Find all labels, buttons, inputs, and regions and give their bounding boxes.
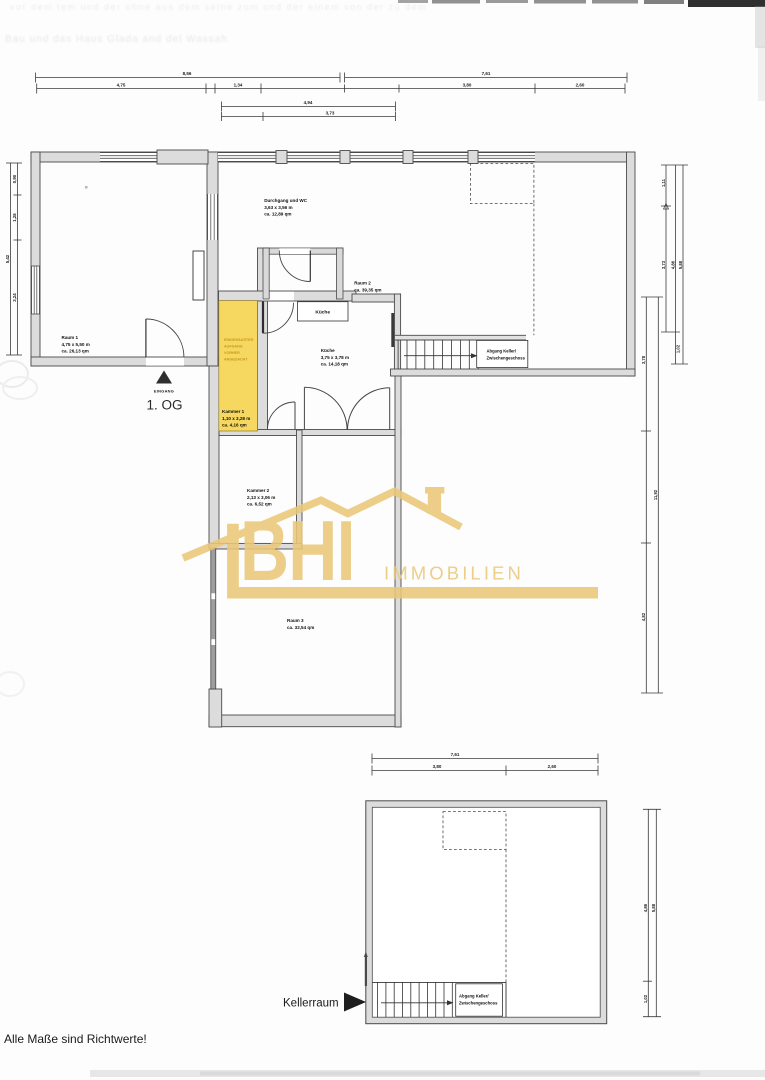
svg-text:2,60: 2,60 [548,764,557,769]
svg-text:5,88: 5,88 [678,260,683,269]
svg-text:3,78: 3,78 [641,355,646,364]
svg-text:1,02: 1,02 [676,344,681,353]
svg-text:4,86: 4,86 [643,903,648,912]
svg-text:5,88: 5,88 [651,903,656,912]
svg-text:3,75 x 3,78 m: 3,75 x 3,78 m [321,355,349,360]
svg-text:Raum 3: Raum 3 [287,618,304,623]
svg-text:4,75: 4,75 [117,83,126,88]
svg-text:4,94: 4,94 [304,100,313,105]
svg-text:Küche: Küche [315,310,330,316]
svg-text:Bau und das Haus Glada and del: Bau und das Haus Glada and del Wassah [5,34,228,45]
svg-text:ca. 32,54 qm: ca. 32,54 qm [287,625,314,630]
svg-text:ca. 4,16 qm: ca. 4,16 qm [222,423,247,428]
svg-text:4,75 x 5,50 m: 4,75 x 5,50 m [62,342,90,347]
svg-text:3,80: 3,80 [463,83,472,88]
svg-text:1,10 x 3,28 m: 1,10 x 3,28 m [222,416,250,421]
svg-text:4,86: 4,86 [670,260,675,269]
svg-text:AUFGANG: AUFGANG [224,345,243,349]
svg-text:Kammer 1: Kammer 1 [222,409,245,414]
svg-text:Zwischengeschoss: Zwischengeschoss [487,356,526,361]
svg-text:7,61: 7,61 [451,752,460,757]
svg-text:3,63 x 3,56 m: 3,63 x 3,56 m [264,205,292,210]
svg-text:vor dem tem und der ohne aus d: vor dem tem und der ohne aus dem seine z… [10,2,427,12]
svg-text:BHI: BHI [240,504,355,599]
svg-text:2,13 x 3,06 m: 2,13 x 3,06 m [247,495,275,500]
svg-text:4,82: 4,82 [641,612,646,621]
svg-text:ca. 14,18 qm: ca. 14,18 qm [321,362,348,367]
svg-text:Raum 1: Raum 1 [62,335,79,340]
svg-text:1,11: 1,11 [661,178,666,187]
svg-text:ca. 39,35 qm: ca. 39,35 qm [354,287,381,292]
svg-text:1,34: 1,34 [234,83,243,88]
svg-text:11,92: 11,92 [653,489,658,500]
svg-text:Abgang Keller/: Abgang Keller/ [459,994,489,999]
svg-text:3,24: 3,24 [12,293,17,302]
svg-text:EINGEHAUSTER: EINGEHAUSTER [224,338,254,342]
svg-text:Raum 2: Raum 2 [354,281,371,286]
svg-text:ca. 26,13 qm: ca. 26,13 qm [62,349,89,354]
svg-text:7,61: 7,61 [482,71,491,76]
svg-text:Alle Maße sind Richtwerte!: Alle Maße sind Richtwerte! [4,1032,147,1046]
svg-text:ANGEDACHT: ANGEDACHT [224,358,248,362]
svg-text:Zwischengeschoss: Zwischengeschoss [459,1001,498,1006]
svg-text:1. OG: 1. OG [146,398,182,413]
svg-text:8,56: 8,56 [183,71,192,76]
svg-text:3,80: 3,80 [433,764,442,769]
svg-text:0,90: 0,90 [12,174,17,183]
svg-text:5,42: 5,42 [5,254,10,263]
svg-text:Küche: Küche [321,348,335,353]
svg-text:2,60: 2,60 [576,83,585,88]
svg-text:Durchgang und WC: Durchgang und WC [264,198,308,203]
svg-text:Kellerraum: Kellerraum [283,998,339,1010]
svg-text:EINGANG: EINGANG [154,389,174,394]
svg-text:ca. 12,89 qm: ca. 12,89 qm [264,212,291,217]
svg-text:VORHER: VORHER [224,351,240,355]
svg-text:Abgang Keller/: Abgang Keller/ [487,349,517,354]
svg-text:3,73: 3,73 [661,260,666,269]
svg-text:1,28: 1,28 [12,213,17,222]
svg-text:3,73: 3,73 [326,111,335,116]
svg-text:Kammer 2: Kammer 2 [247,488,270,493]
svg-text:1,02: 1,02 [643,994,648,1003]
svg-text:IMMOBILIEN: IMMOBILIEN [384,563,524,584]
